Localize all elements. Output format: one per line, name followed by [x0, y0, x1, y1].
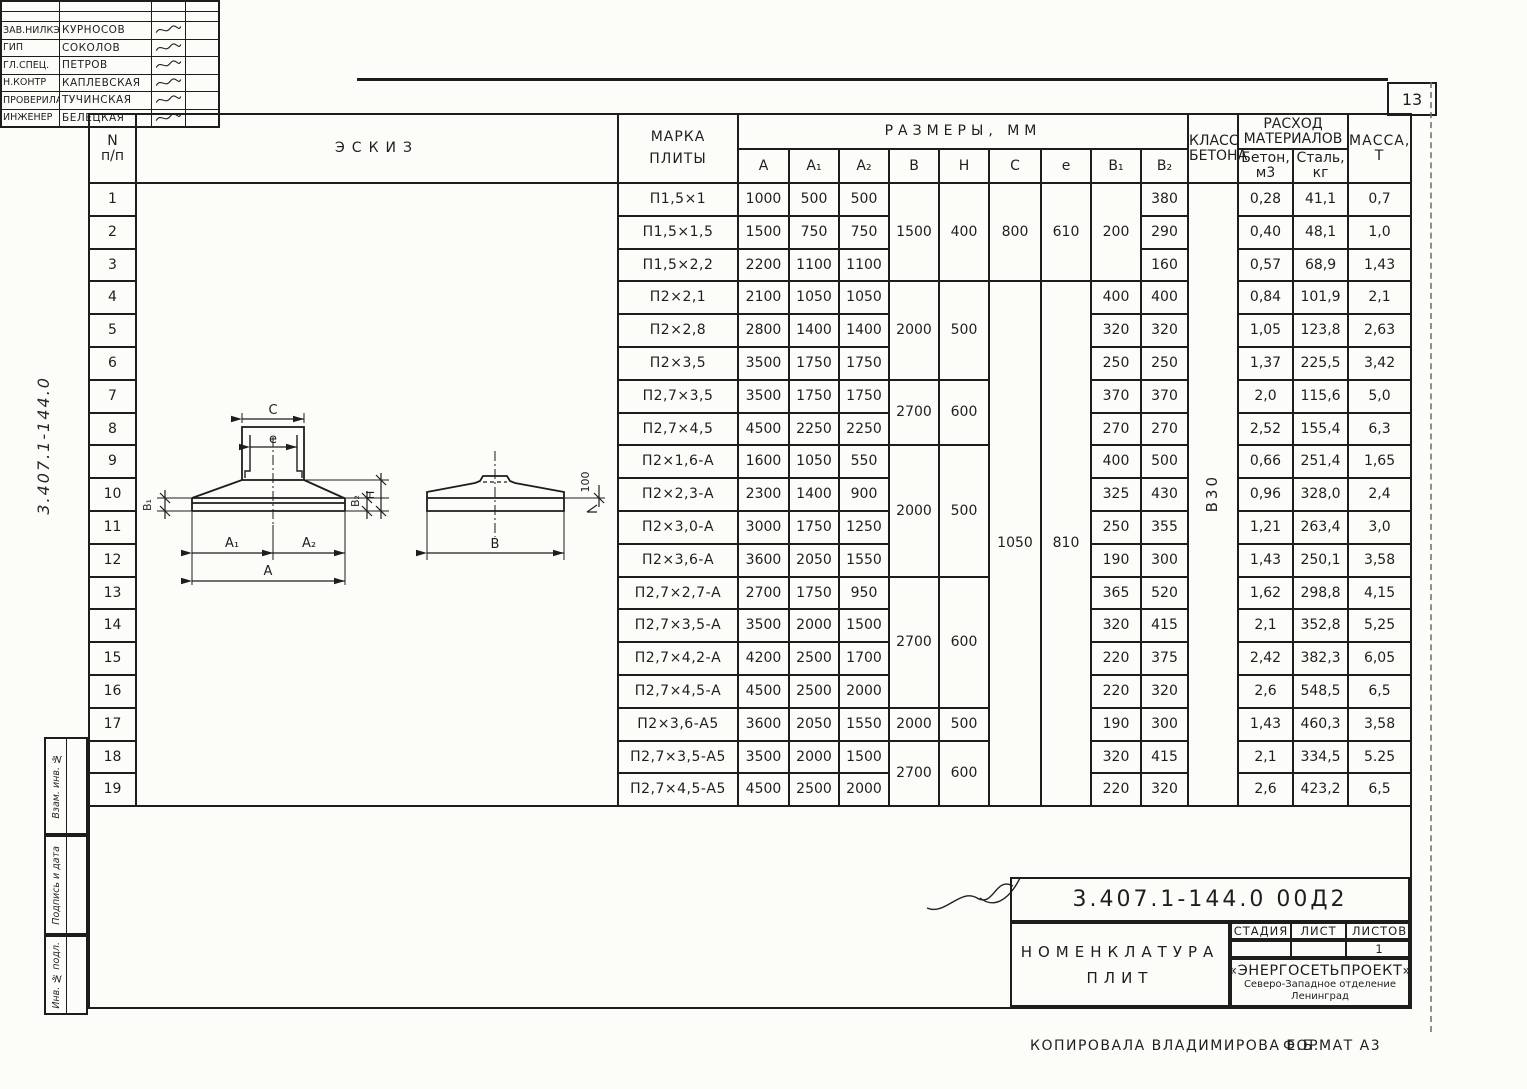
cell: 500 [939, 445, 989, 576]
cell: 220 [1091, 675, 1141, 708]
cell: 2,63 [1348, 314, 1411, 347]
cell: 2500 [789, 675, 839, 708]
cell: 2000 [889, 708, 939, 741]
cell: 101,9 [1293, 281, 1348, 314]
stamp-label: Подпись и дата [51, 846, 62, 925]
org-name: «ЭНЕРГОСЕТЬПРОЕКТ» [1228, 963, 1411, 980]
cell: 2250 [789, 413, 839, 446]
cell: 2,42 [1238, 642, 1293, 675]
cell: 3,58 [1348, 544, 1411, 577]
cell: 334,5 [1293, 741, 1348, 774]
cell: 1100 [789, 249, 839, 282]
cell: 810 [1041, 281, 1091, 806]
signature-scribble [152, 75, 186, 92]
cell: 2100 [738, 281, 789, 314]
cell: 1,0 [1348, 216, 1411, 249]
cell: 8 [89, 413, 136, 446]
cell: 2000 [789, 609, 839, 642]
dim-label-a2: А₂ [302, 536, 316, 551]
cell: 520 [1141, 577, 1188, 610]
cell: 600 [939, 380, 989, 446]
cell: 500 [939, 281, 989, 379]
cell: 430 [1141, 478, 1188, 511]
cell: 1,43 [1238, 544, 1293, 577]
cell: 400 [939, 183, 989, 281]
cell: 2200 [738, 249, 789, 282]
cell: 355 [1141, 511, 1188, 544]
dim-label-b1: В₁ [141, 499, 154, 511]
dim-label-a1: А₁ [225, 536, 239, 551]
cell: 290 [1141, 216, 1188, 249]
signature-date-cell [186, 92, 218, 109]
dim-label-100: 100 [579, 472, 592, 493]
cell: 1750 [839, 380, 889, 413]
cell: П2×3,5 [618, 347, 738, 380]
header-rashod: Расходматериалов [1238, 114, 1348, 149]
cell: 3 [89, 249, 136, 282]
cell: 18 [89, 741, 136, 774]
cell: 68,9 [1293, 249, 1348, 282]
concrete-class-cell: В30 [1188, 183, 1238, 806]
cell: 600 [939, 577, 989, 708]
signature-row: Гл.спец.Петров [2, 57, 218, 75]
cell: 3,58 [1348, 708, 1411, 741]
cell: 1050 [789, 445, 839, 478]
cell: 155,4 [1293, 413, 1348, 446]
cell: 115,6 [1293, 380, 1348, 413]
cell: 1500 [889, 183, 939, 281]
stamp-label: Взам. инв. № [51, 753, 62, 819]
cell: 600 [939, 741, 989, 807]
dim-label-c: С [268, 403, 277, 418]
cell: 2050 [789, 544, 839, 577]
dim-label-e: е [269, 432, 277, 447]
cell: 325 [1091, 478, 1141, 511]
stamp-inv-podl: Инв. № подл. [44, 935, 88, 1015]
signature-table: Зав.НИЛКЭКурносовГИПСоколовГл.спец.Петро… [0, 0, 220, 128]
cell: 4,15 [1348, 577, 1411, 610]
signer-role: Н.контр [2, 75, 60, 92]
cell: 3500 [738, 741, 789, 774]
header-klass: Классбетона [1188, 114, 1238, 183]
cell: 400 [1091, 281, 1141, 314]
cell: 220 [1091, 642, 1141, 675]
cell: 190 [1091, 544, 1141, 577]
cell: 19 [89, 773, 136, 806]
header-sketch: Эскиз [136, 114, 618, 183]
header-massa: Масса,т [1348, 114, 1411, 183]
signature-date-cell [186, 22, 218, 39]
cell: 4 [89, 281, 136, 314]
cell: 320 [1091, 741, 1141, 774]
cell: 950 [839, 577, 889, 610]
header-razmery: Размеры, мм [738, 114, 1188, 149]
cell: 1 [89, 183, 136, 216]
header-dim-a1: А₁ [789, 149, 839, 183]
cell: П2,7×4,2-А [618, 642, 738, 675]
cell: 500 [1141, 445, 1188, 478]
cell: П1,5×1 [618, 183, 738, 216]
cell: 5.25 [1348, 741, 1411, 774]
cell: 382,3 [1293, 642, 1348, 675]
cell: 270 [1091, 413, 1141, 446]
cell: 400 [1091, 445, 1141, 478]
cell: 7 [89, 380, 136, 413]
cell: П2×3,6-А5 [618, 708, 738, 741]
cell: 2,0 [1238, 380, 1293, 413]
cell: 610 [1041, 183, 1091, 281]
cell: 1700 [839, 642, 889, 675]
signer-role: Зав.НИЛКЭ [2, 22, 60, 39]
cell: 2300 [738, 478, 789, 511]
cell: 0,57 [1238, 249, 1293, 282]
cell: 225,5 [1293, 347, 1348, 380]
cell: 1,37 [1238, 347, 1293, 380]
cell: 9 [89, 445, 136, 478]
cell: 1750 [789, 577, 839, 610]
cell: 220 [1091, 773, 1141, 806]
cell: 250,1 [1293, 544, 1348, 577]
cell: 0,28 [1238, 183, 1293, 216]
cell: 2000 [839, 773, 889, 806]
signer-role: ГИП [2, 40, 60, 57]
concrete-class: В30 [1205, 474, 1221, 512]
cell: 0,96 [1238, 478, 1293, 511]
cell: 750 [789, 216, 839, 249]
header-dim-a2: А₂ [839, 149, 889, 183]
cell: 1750 [789, 380, 839, 413]
format-caption: ФОРМАТ А3 [1283, 1038, 1381, 1054]
cell: 2500 [789, 642, 839, 675]
cell: 320 [1091, 609, 1141, 642]
cell: 800 [989, 183, 1041, 281]
cell: 190 [1091, 708, 1141, 741]
cell: 1750 [789, 511, 839, 544]
cell: П2,7×2,7-А [618, 577, 738, 610]
header-marka: Маркаплиты [618, 114, 738, 183]
copied-by-caption: Копировала Владимирова Е.Б. [1030, 1038, 1320, 1054]
cell: 320 [1141, 675, 1188, 708]
cell: 41,1 [1293, 183, 1348, 216]
cell: 5,25 [1348, 609, 1411, 642]
signature-scribble [152, 92, 186, 109]
cell: 1400 [839, 314, 889, 347]
title-block-title: Номенклатура плит [1010, 922, 1230, 1007]
cell: 2000 [839, 675, 889, 708]
cell: 6,5 [1348, 675, 1411, 708]
cell: П2×2,8 [618, 314, 738, 347]
cell: П2,7×3,5-А [618, 609, 738, 642]
cell: 2000 [789, 741, 839, 774]
signature-scribble [152, 57, 186, 74]
header-dim-a: А [738, 149, 789, 183]
cell: 2,6 [1238, 773, 1293, 806]
cell: 500 [939, 708, 989, 741]
cell: 415 [1141, 741, 1188, 774]
cell: 250 [1141, 347, 1188, 380]
cell: 2800 [738, 314, 789, 347]
cell: 160 [1141, 249, 1188, 282]
cell: 415 [1141, 609, 1188, 642]
header-n: Nп/п [89, 114, 136, 183]
signature-row: Зав.НИЛКЭКурносов [2, 22, 218, 40]
dim-label-b2: В₂ [349, 495, 362, 507]
cell: 548,5 [1293, 675, 1348, 708]
title-block-doc-number: 3.407.1-144.0 00Д2 [1010, 877, 1410, 922]
cell: 270 [1141, 413, 1188, 446]
cell: 1050 [789, 281, 839, 314]
cell: 1050 [839, 281, 889, 314]
cell: 3500 [738, 609, 789, 642]
dim-label-a: А [264, 564, 273, 579]
cell: 12 [89, 544, 136, 577]
cell: 1750 [789, 347, 839, 380]
page-number: 13 [1402, 90, 1422, 109]
cell: 1500 [839, 741, 889, 774]
org-city: Ленинград [1291, 991, 1349, 1003]
cell: 251,4 [1293, 445, 1348, 478]
cell: 14 [89, 609, 136, 642]
stage-label: Стадия [1232, 924, 1292, 938]
signature-row: ГИПСоколов [2, 40, 218, 58]
cell: 2250 [839, 413, 889, 446]
cell: 370 [1091, 380, 1141, 413]
header-dim-e: е [1041, 149, 1091, 183]
table-row: 1 [89, 183, 1411, 216]
header-dim-b: В [889, 149, 939, 183]
sheets-label: Листов [1347, 924, 1412, 938]
cell: П2,7×3,5-А5 [618, 741, 738, 774]
title-line-1: Номенклатура [1021, 943, 1220, 961]
cell: 1050 [989, 281, 1041, 806]
cell: 1100 [839, 249, 889, 282]
cell: 2700 [889, 577, 939, 708]
cell: 2,52 [1238, 413, 1293, 446]
cell: 10 [89, 478, 136, 511]
sheet-value [1292, 942, 1347, 956]
cell: 3000 [738, 511, 789, 544]
signer-name: Тучинская [60, 92, 152, 109]
cell: 2050 [789, 708, 839, 741]
cell: 320 [1141, 773, 1188, 806]
cell: 2,4 [1348, 478, 1411, 511]
cell: 263,4 [1293, 511, 1348, 544]
sheet-edge-dashed-line [1430, 82, 1432, 1032]
cell: П2×3,0-А [618, 511, 738, 544]
cell: 300 [1141, 708, 1188, 741]
signer-role: Проверила [2, 92, 60, 109]
signer-name: Соколов [60, 40, 152, 57]
cell: 1,05 [1238, 314, 1293, 347]
header-dim-h: Н [939, 149, 989, 183]
sheet-label: Лист [1292, 924, 1347, 938]
signer-name: Каплевская [60, 75, 152, 92]
cell: 1500 [738, 216, 789, 249]
stamp-label: Инв. № подл. [51, 942, 62, 1009]
cell: 4500 [738, 675, 789, 708]
cell: П1,5×1,5 [618, 216, 738, 249]
cell: 3500 [738, 347, 789, 380]
header-dim-b1: В₁ [1091, 149, 1141, 183]
stamp-vzam-inv: Взам. инв. № [44, 737, 88, 835]
signature-row: Н.контрКаплевская [2, 75, 218, 93]
cell: 1250 [839, 511, 889, 544]
cell: 365 [1091, 577, 1141, 610]
cell: 300 [1141, 544, 1188, 577]
signature-row-empty [2, 12, 218, 22]
header-stal: Сталь,кг [1293, 149, 1348, 183]
signature-row: ПроверилаТучинская [2, 92, 218, 110]
header-dim-c: С [989, 149, 1041, 183]
cell: 320 [1141, 314, 1188, 347]
cell: 1,62 [1238, 577, 1293, 610]
cell: 2,1 [1238, 609, 1293, 642]
cell: П2,7×4,5-А5 [618, 773, 738, 806]
cell: 1400 [789, 478, 839, 511]
organization-block: «ЭНЕРГОСЕТЬПРОЕКТ» Северо-Западное отдел… [1230, 958, 1410, 1007]
stage-value [1232, 942, 1292, 956]
cell: 900 [839, 478, 889, 511]
cell: 6,5 [1348, 773, 1411, 806]
cell: 2500 [789, 773, 839, 806]
cell: 2700 [889, 380, 939, 446]
cell: 550 [839, 445, 889, 478]
cell: 1,21 [1238, 511, 1293, 544]
cell: 1000 [738, 183, 789, 216]
cell: П2×3,6-А [618, 544, 738, 577]
cell: 13 [89, 577, 136, 610]
signature-scribble [152, 22, 186, 39]
cell: 750 [839, 216, 889, 249]
cell: 2,1 [1348, 281, 1411, 314]
signature-row-empty [2, 2, 218, 12]
cell: 1500 [839, 609, 889, 642]
cell: 6,05 [1348, 642, 1411, 675]
cell: 2,1 [1238, 741, 1293, 774]
cell: 15 [89, 642, 136, 675]
cell: 4500 [738, 773, 789, 806]
cell: 0,84 [1238, 281, 1293, 314]
cell: 3600 [738, 544, 789, 577]
cell: П1,5×2,2 [618, 249, 738, 282]
signer-name: Петров [60, 57, 152, 74]
cell: 2700 [738, 577, 789, 610]
stage-value-row: 1 [1230, 940, 1410, 958]
top-border-rule [357, 78, 1388, 81]
cell: 200 [1091, 183, 1141, 281]
cell: 16 [89, 675, 136, 708]
cell: 460,3 [1293, 708, 1348, 741]
cell: 3,0 [1348, 511, 1411, 544]
cell: 1400 [789, 314, 839, 347]
sheets-value: 1 [1347, 942, 1412, 956]
cell: 1600 [738, 445, 789, 478]
stage-header-row: Стадия Лист Листов [1230, 922, 1410, 940]
cell: 6,3 [1348, 413, 1411, 446]
cell: П2×1,6-А [618, 445, 738, 478]
cell: 3500 [738, 380, 789, 413]
cell: 6 [89, 347, 136, 380]
header-dim-b2: В₂ [1141, 149, 1188, 183]
signer-name: Курносов [60, 22, 152, 39]
drawing-sheet: 13 3.407.1-144.0 Взам. инв. № Подпись и … [0, 0, 1527, 1089]
cell: 1550 [839, 708, 889, 741]
signature-date-cell [186, 40, 218, 57]
cell: 1,43 [1238, 708, 1293, 741]
org-branch: Северо-Западное отделение [1244, 979, 1396, 991]
cell: 3,42 [1348, 347, 1411, 380]
cell: 48,1 [1293, 216, 1348, 249]
signature-date-cell [186, 57, 218, 74]
cell: 2700 [889, 741, 939, 807]
cell: 4200 [738, 642, 789, 675]
cell: 2000 [889, 281, 939, 379]
cell: 1550 [839, 544, 889, 577]
nomenclature-table: Nп/п Эскиз Маркаплиты Размеры, мм Классб… [88, 113, 1412, 807]
cell: 123,8 [1293, 314, 1348, 347]
cell: 5,0 [1348, 380, 1411, 413]
cell: 328,0 [1293, 478, 1348, 511]
cell: 250 [1091, 347, 1141, 380]
cell: 352,8 [1293, 609, 1348, 642]
cell: 0,7 [1348, 183, 1411, 216]
cell: 2000 [889, 445, 939, 576]
cell: 5 [89, 314, 136, 347]
cell: 375 [1141, 642, 1188, 675]
stamp-podpis-data: Подпись и дата [44, 835, 88, 935]
cell: 0,66 [1238, 445, 1293, 478]
signer-role: Гл.спец. [2, 57, 60, 74]
cell: 11 [89, 511, 136, 544]
cell: 250 [1091, 511, 1141, 544]
cell: 3600 [738, 708, 789, 741]
cell: 0,40 [1238, 216, 1293, 249]
cell: 320 [1091, 314, 1141, 347]
cell: 2,6 [1238, 675, 1293, 708]
signature-scribble [152, 40, 186, 57]
dim-label-b: В [491, 537, 500, 552]
cell: 1,43 [1348, 249, 1411, 282]
cell: 500 [789, 183, 839, 216]
sketch-cell: С е В₁ В₂ Н А₁ А₂ А В 100 [136, 183, 618, 806]
dim-label-h: Н [364, 491, 377, 499]
plate-sketch: С е В₁ В₂ Н А₁ А₂ А В 100 [137, 185, 615, 804]
title-line-2: плит [1087, 969, 1154, 987]
cell: П2,7×4,5-А [618, 675, 738, 708]
signature-date-cell [186, 75, 218, 92]
cell: 17 [89, 708, 136, 741]
cell: 4500 [738, 413, 789, 446]
cell: 1,65 [1348, 445, 1411, 478]
cell: 298,8 [1293, 577, 1348, 610]
header-beton: Бетон,м3 [1238, 149, 1293, 183]
cell: П2,7×3,5 [618, 380, 738, 413]
cell: П2×2,3-А [618, 478, 738, 511]
cell: П2,7×4,5 [618, 413, 738, 446]
cell: 380 [1141, 183, 1188, 216]
cell: П2×2,1 [618, 281, 738, 314]
side-doc-number: 3.407.1-144.0 [22, 358, 64, 533]
signer-role: Инженер [2, 110, 60, 127]
cell: 500 [839, 183, 889, 216]
cell: 400 [1141, 281, 1188, 314]
cell: 2 [89, 216, 136, 249]
cell: 1750 [839, 347, 889, 380]
cell: 423,2 [1293, 773, 1348, 806]
cell: 370 [1141, 380, 1188, 413]
